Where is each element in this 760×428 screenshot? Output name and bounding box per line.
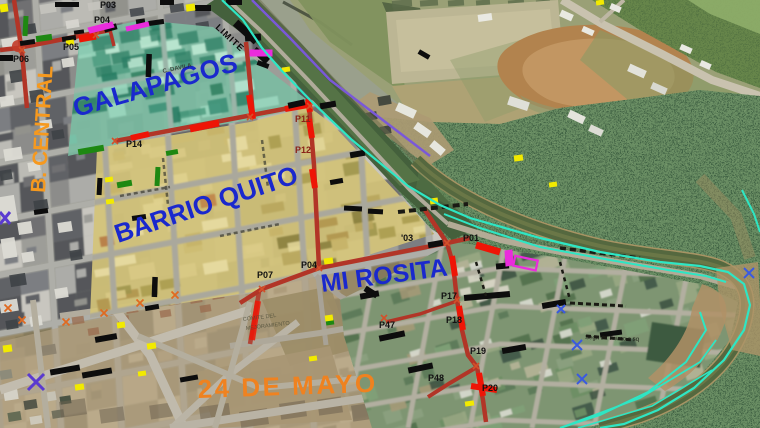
svg-text:24 DE MAYO: 24 DE MAYO — [197, 368, 378, 404]
svg-text:P03: P03 — [100, 0, 116, 10]
svg-text:P14: P14 — [126, 139, 142, 149]
svg-text:P12: P12 — [295, 145, 311, 155]
svg-text:P47: P47 — [379, 320, 395, 330]
svg-text:P04: P04 — [94, 15, 110, 25]
svg-text:P48: P48 — [428, 373, 444, 383]
svg-text:P20: P20 — [482, 383, 498, 393]
svg-text:P18: P18 — [446, 315, 462, 325]
svg-text:P07: P07 — [257, 270, 273, 280]
svg-text:'03: '03 — [401, 233, 413, 243]
svg-text:P19: P19 — [470, 346, 486, 356]
svg-text:P17: P17 — [441, 291, 457, 301]
svg-text:P06: P06 — [13, 54, 29, 64]
svg-text:P04: P04 — [301, 260, 317, 270]
svg-text:P11: P11 — [295, 114, 311, 124]
svg-text:P01: P01 — [463, 233, 479, 243]
svg-text:P05: P05 — [63, 42, 79, 52]
